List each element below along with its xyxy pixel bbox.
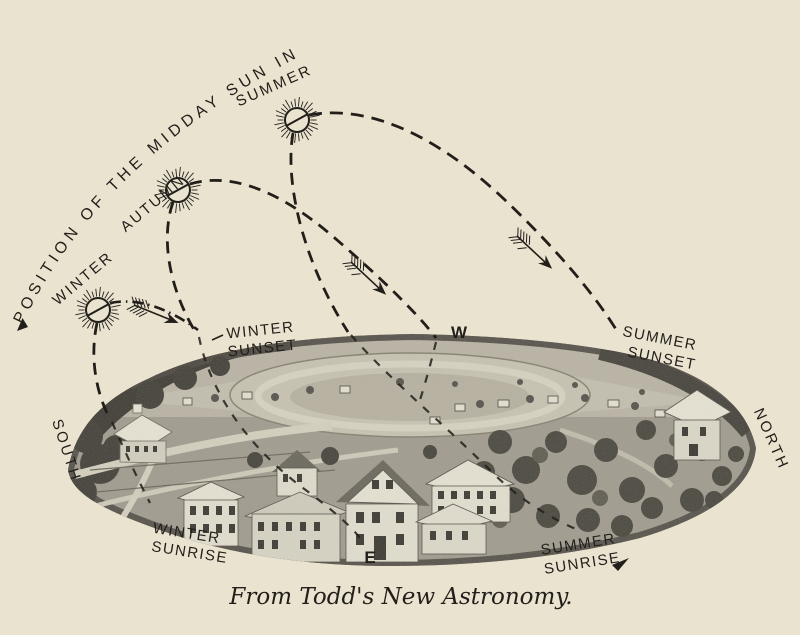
compass-east: E — [364, 548, 375, 567]
compass-west: W — [451, 323, 468, 342]
figure-caption: From Todd's New Astronomy. — [228, 584, 572, 610]
todd-astronomy-figure: POSITION OF THE MIDDAY SUN IN WINTER AUT… — [0, 0, 800, 635]
figure-canvas: POSITION OF THE MIDDAY SUN IN WINTER AUT… — [0, 0, 800, 635]
